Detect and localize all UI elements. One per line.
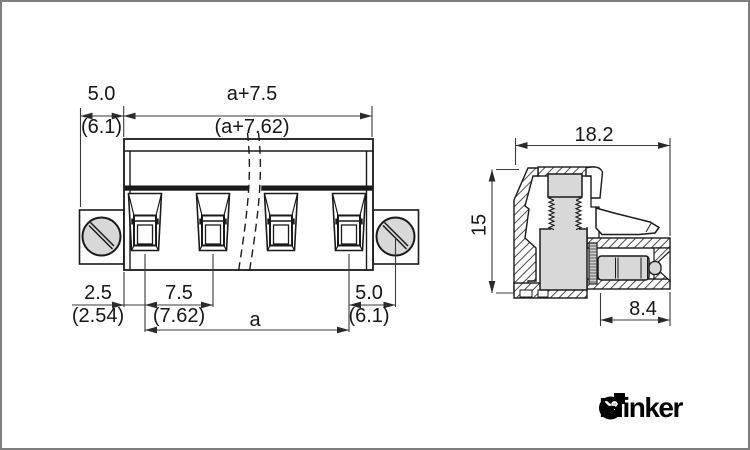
terminal-pole-2 — [197, 194, 230, 251]
left-mounting-screw — [83, 218, 121, 256]
clamp-screw-head — [548, 174, 582, 197]
dim-front-offset-alt: (2.54) — [72, 306, 124, 327]
terminal-pole-4 — [333, 194, 366, 251]
brand-logo-text: Elinker — [599, 394, 682, 422]
dim-side-width-value: 18.2 — [575, 125, 614, 146]
dim-front-top-left-alt: (6.1) — [81, 117, 122, 138]
dim-side-pin-value: 8.4 — [629, 299, 657, 320]
dim-front-top-span-alt: (a+7.62) — [214, 117, 289, 138]
dim-front-offset-value: 2.5 — [84, 283, 112, 304]
terminal-block-drawing — [2, 2, 748, 448]
dim-front-top-span-value: a+7.5 — [227, 84, 278, 105]
contact-pin — [598, 256, 661, 280]
wire-clamp-block — [540, 229, 587, 290]
dim-front-top-left-value: 5.0 — [88, 84, 116, 105]
dim-side-height-value: 15 — [470, 214, 491, 236]
dim-front-span-value: a — [249, 310, 260, 331]
dim-front-pitch-alt: (7.62) — [153, 306, 205, 327]
terminal-pole-3 — [265, 194, 298, 251]
dim-front-pitch-value: 7.5 — [165, 283, 193, 304]
brand-logo: Elinker — [597, 393, 682, 423]
left-housing-wall — [514, 168, 538, 294]
dim-front-right-alt: (6.1) — [348, 306, 389, 327]
terminal-pole-1 — [129, 194, 162, 251]
latch-arm — [596, 208, 659, 235]
serrated-clamp-strip — [589, 243, 597, 284]
dim-front-right-value: 5.0 — [355, 283, 383, 304]
drawing-canvas: 5.0 (6.1) a+7.5 (a+7.62) 2.5 (2.54) 7.5 … — [0, 0, 750, 450]
